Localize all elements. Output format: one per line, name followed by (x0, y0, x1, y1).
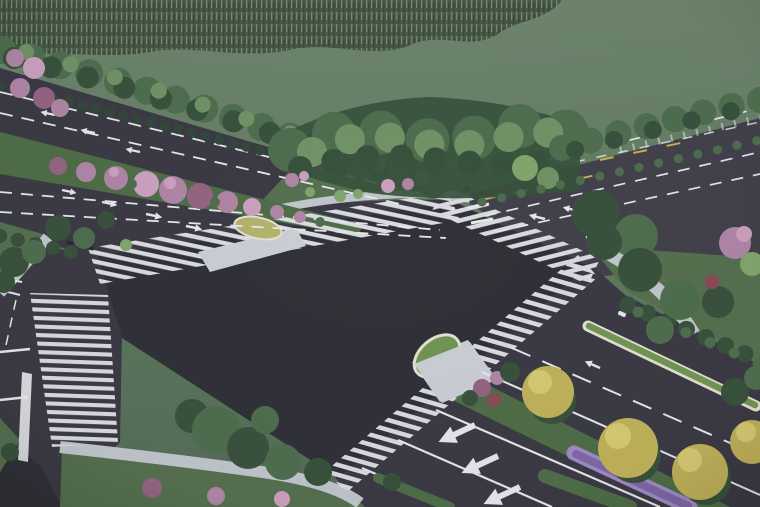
photo-vignette (0, 0, 760, 507)
rendering-photo (0, 0, 760, 507)
intersection-rendering (0, 0, 760, 507)
